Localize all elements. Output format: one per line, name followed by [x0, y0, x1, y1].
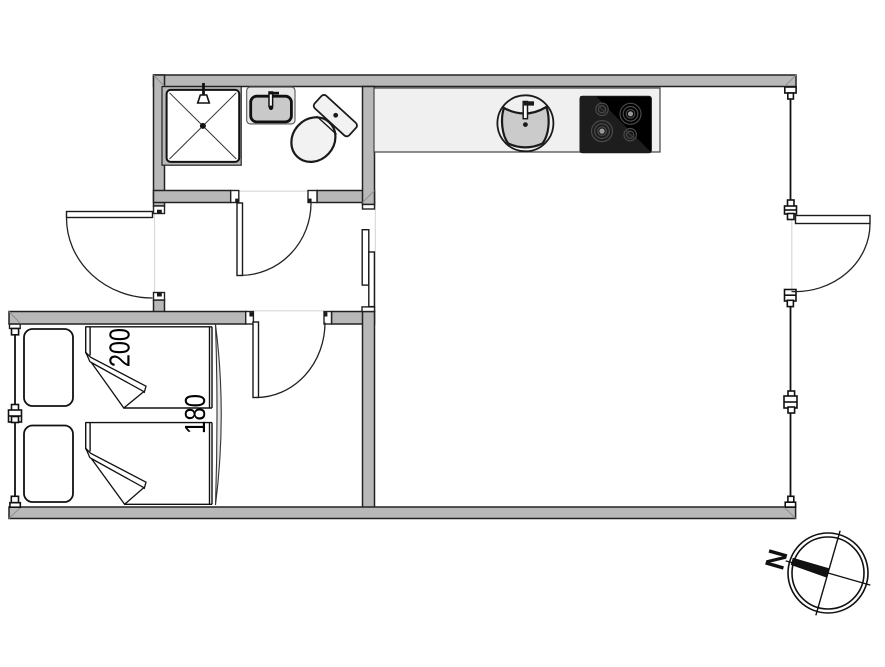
svg-text:200: 200 [105, 328, 137, 367]
svg-text:180: 180 [180, 394, 212, 434]
